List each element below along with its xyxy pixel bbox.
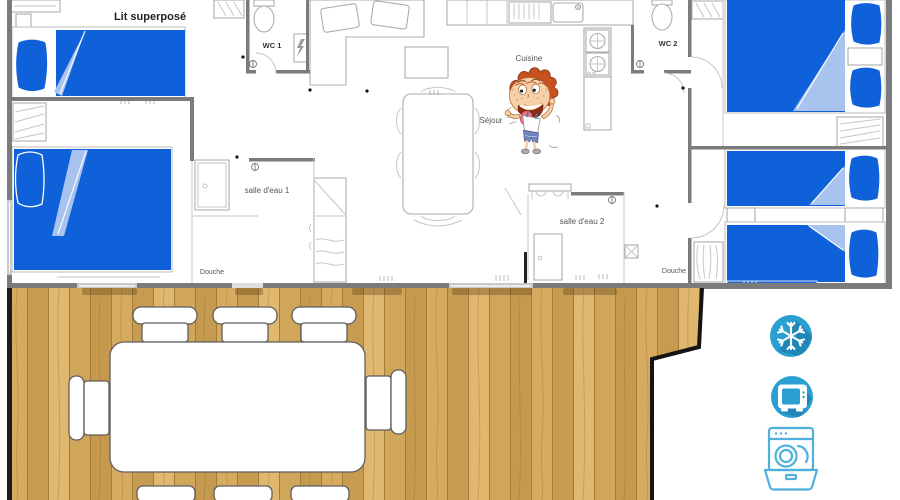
wall-wc1-west [246,0,250,73]
deck-chair [137,486,195,500]
terrace-deck [7,288,702,500]
label-wc1: WC 1 [263,41,282,50]
wall-bathroom1 [249,158,315,162]
dining-table [397,88,480,227]
nightstand [727,208,755,222]
dresser [837,117,883,147]
nightstand [16,14,31,28]
label-bathroom1: salle d'eau 1 [245,186,290,195]
fridge [584,77,611,130]
label-wc2: WC 2 [659,39,678,48]
deck-chair [292,307,356,342]
mobile-home-floor-plan: Lit superposé WC 1 WC 2 Cuisine Séjour s… [0,0,900,500]
tv-badge [771,376,813,418]
pillow [16,152,45,207]
nightstand [845,208,883,222]
label-living-room: Séjour [479,116,502,125]
toilet-icon [652,0,672,30]
bunk-bed [12,27,185,98]
headboard-shelf [848,48,882,65]
label-kitchen: Cuisine [516,54,543,63]
label-bathroom2: salle d'eau 2 [560,217,605,226]
dishwasher-icon [765,428,817,490]
deck-chair [366,370,406,434]
deck-chair [291,486,349,500]
sofa-pillow [320,3,359,32]
pillow [849,229,880,278]
double-bed [725,0,885,113]
wall-wc1-east [306,0,309,73]
single-bed-1 [725,149,885,208]
wc2-room [652,0,672,30]
single-bed-2 [725,222,885,284]
double-bed [12,147,172,272]
wall-kitchen-east [631,25,634,73]
door-leaf [534,234,562,280]
dresser [13,103,46,141]
outer-wall-right [886,0,892,289]
deck-table [110,342,365,472]
wall-bathroom2 [571,192,624,196]
counter [447,0,633,25]
stove [584,28,611,77]
air-conditioning-badge [770,315,813,357]
wardrobe [692,1,723,19]
shoe [521,149,529,154]
floorplan-svg: Lit superposé WC 1 WC 2 Cuisine Séjour s… [0,0,900,500]
pillow [851,3,883,46]
deck-chair [69,376,109,440]
amenities [765,315,817,490]
wall-between-right-bedrooms [691,146,886,150]
wall-left-bedrooms [7,97,194,101]
pillow [850,67,883,108]
shoe [533,149,541,154]
deck-chair [133,307,197,342]
deck-chair [214,486,272,500]
label-bunk-bed: Lit superposé [114,11,186,23]
dishwasher-badge [765,428,817,490]
pillow [849,155,881,201]
label-shower2: Douche [662,268,686,275]
sofa-pillow [371,1,410,30]
wardrobe [214,0,244,18]
wall-right-bedrooms [688,0,692,57]
coffee-table [405,47,448,78]
pillow [16,39,48,92]
deck-edge-left [7,288,12,500]
label-shower1: Douche [200,269,224,276]
deck-chair [213,307,277,342]
floor-plan: Lit superposé WC 1 WC 2 Cuisine Séjour s… [7,0,892,289]
